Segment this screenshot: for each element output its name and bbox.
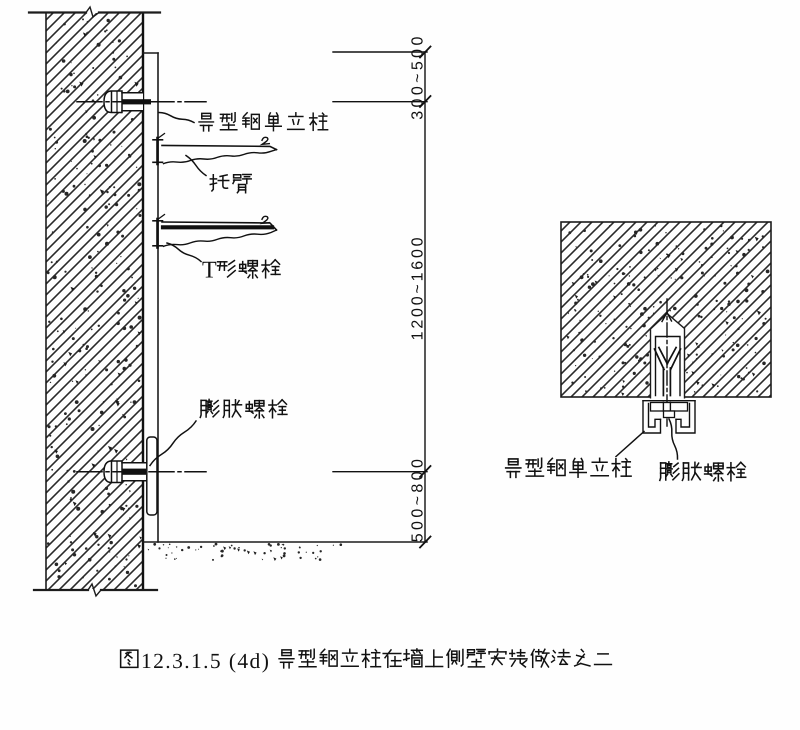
svg-text:12.3.1.5 (4d): 12.3.1.5 (4d) (141, 649, 270, 673)
svg-text:300~500: 300~500 (410, 33, 427, 120)
svg-text:500~800: 500~800 (410, 456, 427, 543)
svg-text:T: T (202, 258, 217, 284)
svg-text:1200~1600: 1200~1600 (410, 235, 427, 341)
